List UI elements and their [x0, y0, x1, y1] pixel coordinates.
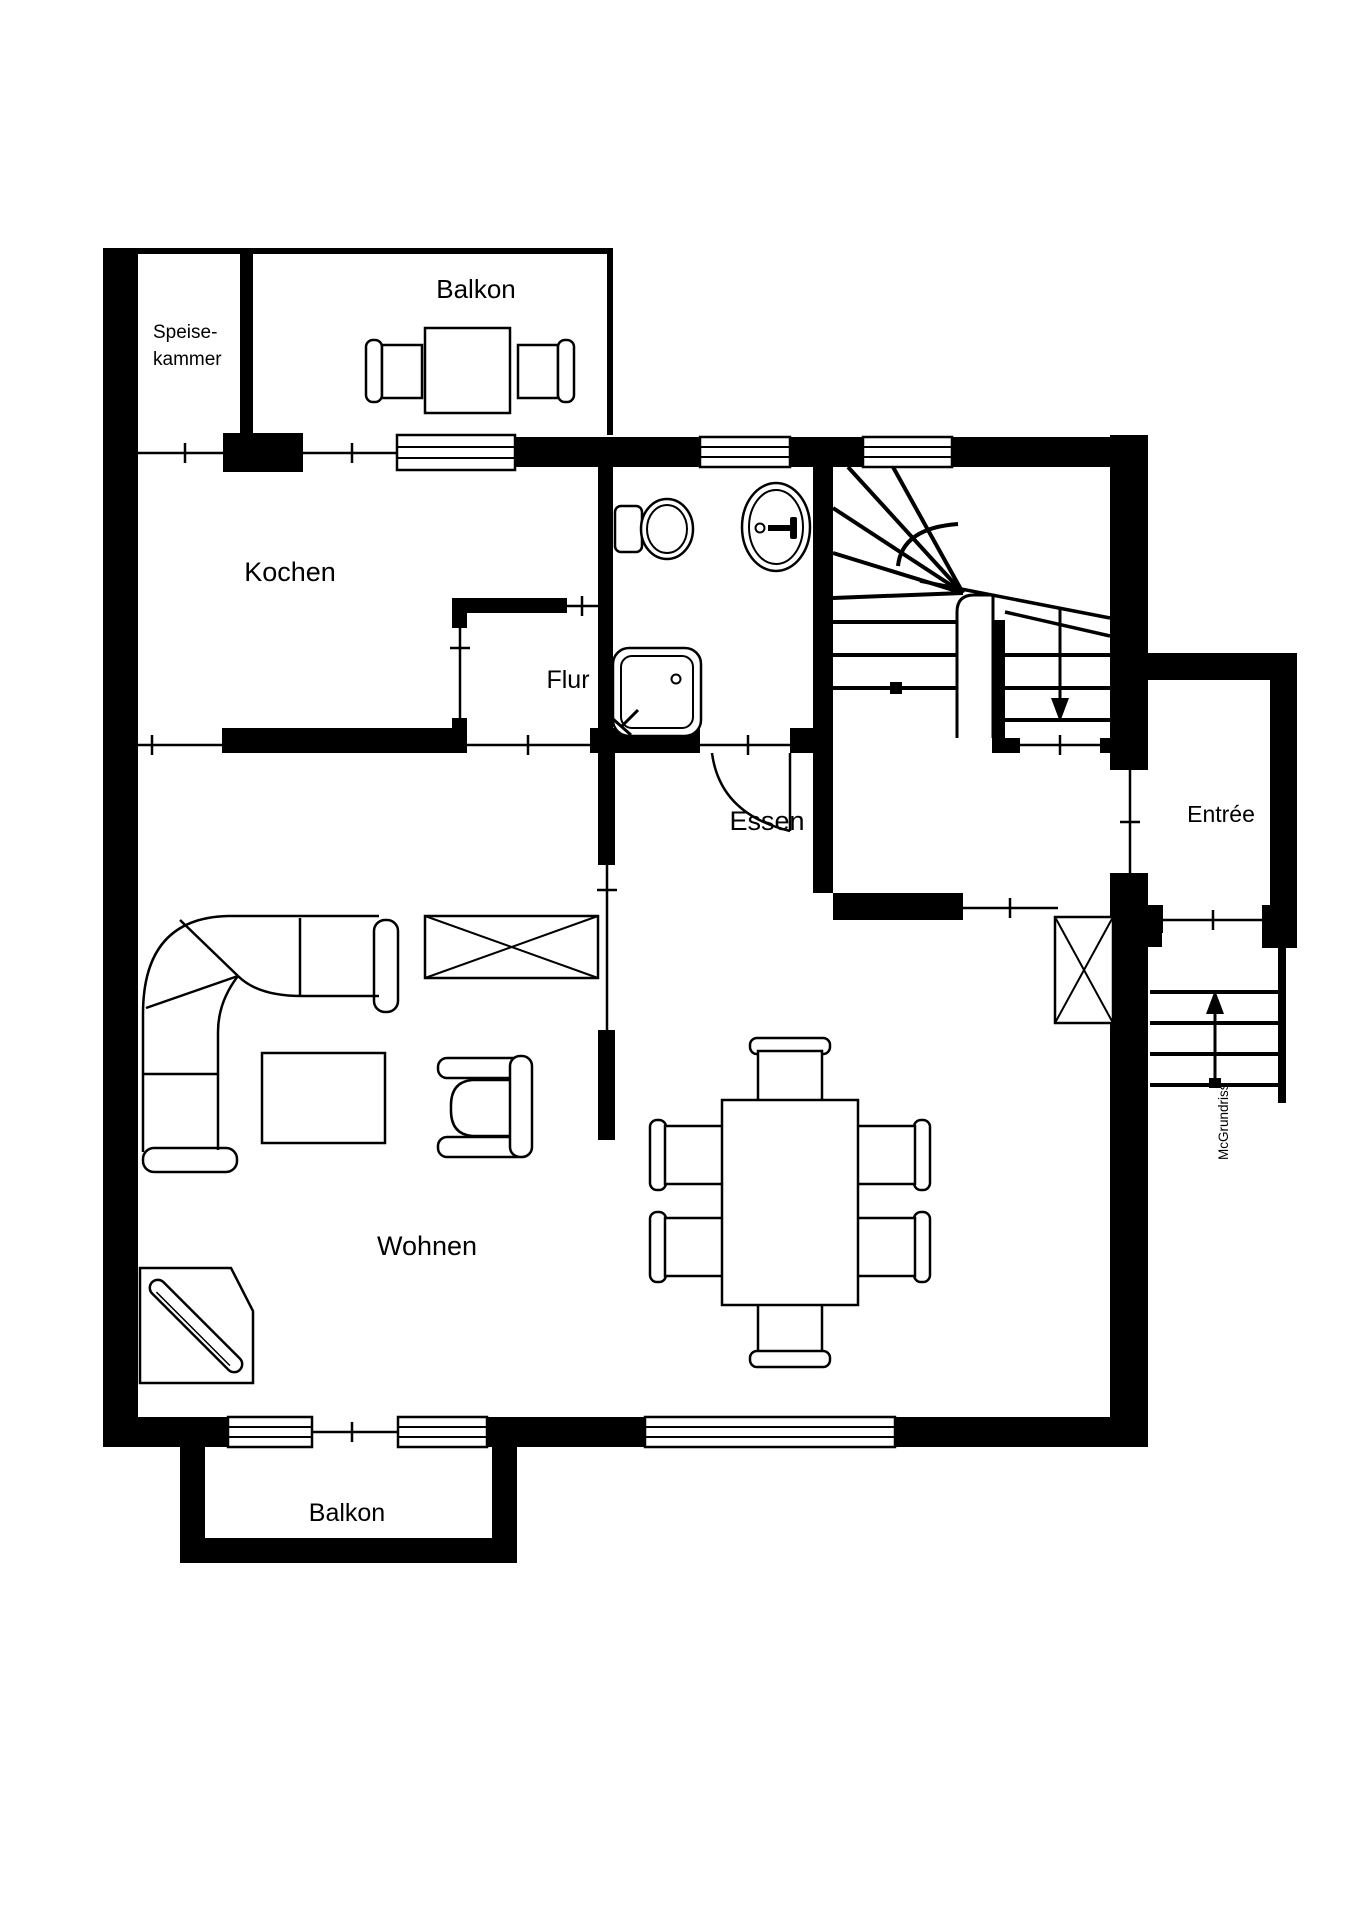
window-kitchen	[397, 435, 515, 470]
dining-chair-bottom	[750, 1351, 830, 1367]
window-wohnen-left	[228, 1417, 312, 1447]
opening-flur-wohnen	[467, 735, 590, 755]
opening-flur-stub	[567, 596, 598, 616]
staircase-main	[833, 467, 1110, 738]
window-essen	[645, 1417, 895, 1447]
balcony-table-set	[366, 328, 574, 413]
opening-entree-west	[1120, 770, 1140, 873]
toilet-icon	[615, 499, 693, 559]
dining-table	[722, 1100, 858, 1305]
opening-kitchen-door	[450, 628, 470, 718]
window-staircase	[863, 437, 952, 467]
stair-up-arrow	[1206, 990, 1224, 1088]
opening-balcony-door-bottom	[312, 1422, 398, 1442]
chair-left	[366, 340, 382, 402]
label-wohnen: Wohnen	[377, 1231, 477, 1261]
opening-essen	[963, 898, 1058, 918]
wardrobe-x-wohnen	[425, 916, 598, 978]
armchair	[438, 1056, 532, 1157]
opening-entree-door	[1163, 910, 1262, 930]
coffee-table	[262, 1053, 385, 1143]
floorplan-page: Balkon Speise- kammer Kochen Flur Entrée…	[0, 0, 1357, 1920]
watermark: McGrundriss	[1216, 1083, 1231, 1160]
opening-speisekammer	[138, 443, 223, 463]
label-essen: Essen	[729, 806, 804, 836]
label-flur: Flur	[546, 666, 589, 694]
balcony-table	[425, 328, 510, 413]
dining-chair-right-1	[914, 1120, 930, 1190]
label-balkon-bottom: Balkon	[309, 1499, 385, 1527]
label-balkon-top: Balkon	[436, 274, 516, 304]
opening-kitchen-wohnen	[138, 735, 222, 755]
opening-stairhall	[1020, 735, 1100, 755]
dining-chair-left-2	[650, 1212, 666, 1282]
label-kochen: Kochen	[244, 557, 336, 587]
label-entree: Entrée	[1187, 801, 1255, 827]
window-bathroom	[700, 437, 790, 467]
staircase-exterior	[1150, 990, 1278, 1088]
tv-sideboard	[140, 1268, 253, 1383]
dining-chair-left-1	[650, 1120, 666, 1190]
label-speisekammer-1: Speise-	[153, 322, 217, 343]
label-speisekammer-2: kammer	[153, 349, 222, 370]
floorplan-canvas: Balkon Speise- kammer Kochen Flur Entrée…	[0, 0, 1357, 1920]
shower-icon	[613, 648, 701, 736]
opening-wohnen-essen	[597, 865, 617, 1030]
opening-balcony-door-top	[303, 443, 397, 463]
dining-chair-right-2	[914, 1212, 930, 1282]
window-wohnen-right	[398, 1417, 487, 1447]
dining-set	[650, 1038, 930, 1367]
wardrobe-x-essen	[1055, 917, 1113, 1023]
sink-icon	[742, 483, 810, 571]
chair-right	[558, 340, 574, 402]
opening-bathroom-door	[700, 735, 790, 755]
